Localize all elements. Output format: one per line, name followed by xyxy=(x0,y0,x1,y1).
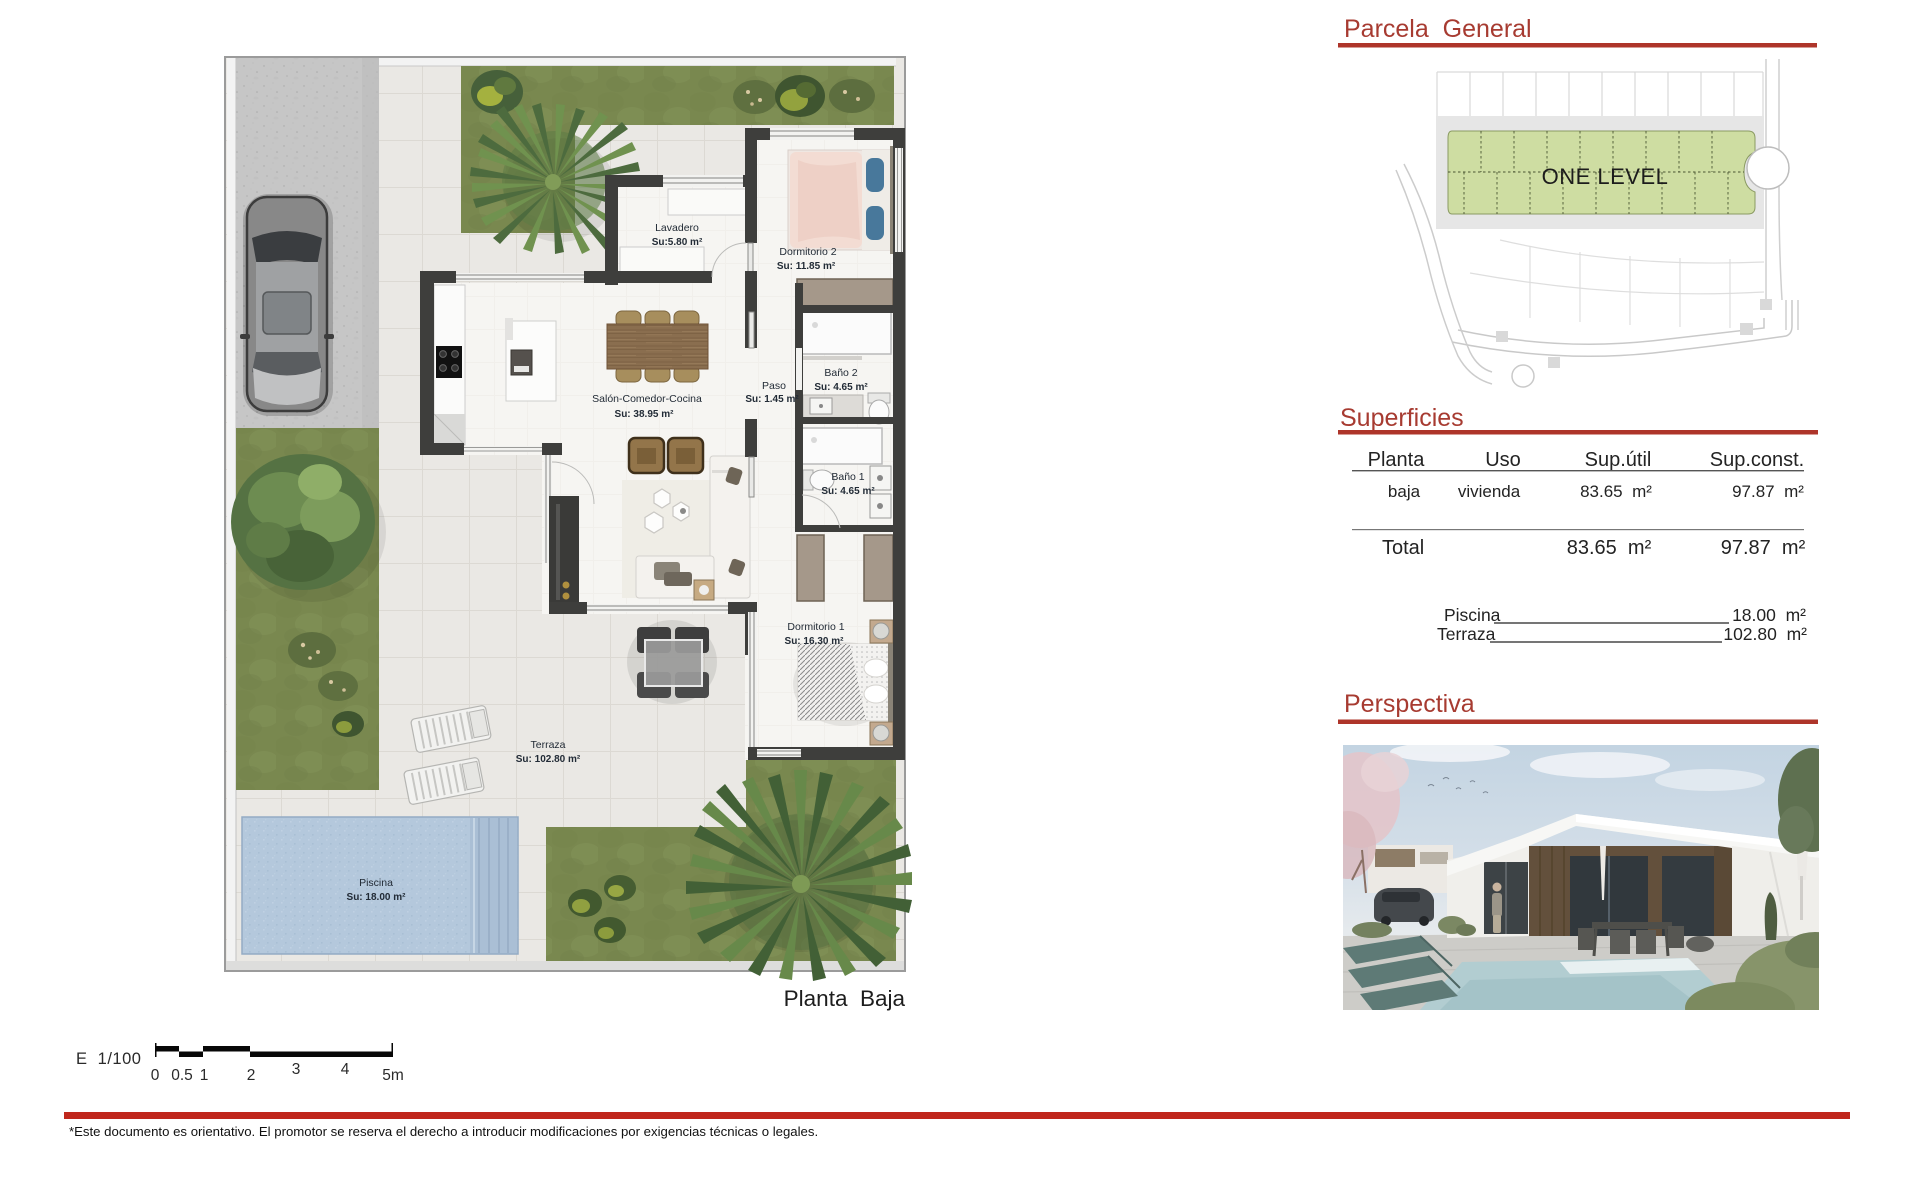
svg-text:Su: 4.65 m²: Su: 4.65 m² xyxy=(821,486,875,497)
svg-text:Terraza: Terraza xyxy=(530,739,565,751)
svg-text:83.65 m²: 83.65 m² xyxy=(1567,537,1652,559)
svg-text:baja: baja xyxy=(1388,482,1421,501)
svg-text:18.00 m²: 18.00 m² xyxy=(1732,605,1806,625)
svg-text:Planta: Planta xyxy=(1368,449,1426,471)
svg-text:Piscina: Piscina xyxy=(359,877,393,889)
svg-text:Su: 38.95 m²: Su: 38.95 m² xyxy=(615,409,675,420)
svg-text:Su: 4.65 m²: Su: 4.65 m² xyxy=(814,382,868,393)
svg-text:Su: 16.30 m²: Su: 16.30 m² xyxy=(785,636,845,647)
svg-text:Sup.const.: Sup.const. xyxy=(1710,449,1805,471)
svg-text:97.87 m²: 97.87 m² xyxy=(1721,537,1806,559)
svg-text:0.5: 0.5 xyxy=(171,1067,193,1084)
svg-text:Su: 18.00 m²: Su: 18.00 m² xyxy=(347,892,407,903)
svg-text:Planta Baja: Planta Baja xyxy=(784,986,906,1011)
svg-text:*Este documento es orientativo: *Este documento es orientativo. El promo… xyxy=(69,1124,818,1139)
svg-text:5m: 5m xyxy=(382,1067,404,1084)
svg-text:Superficies: Superficies xyxy=(1340,404,1464,432)
svg-text:Dormitorio 1: Dormitorio 1 xyxy=(787,621,844,633)
svg-text:Su: 102.80 m²: Su: 102.80 m² xyxy=(516,754,581,765)
svg-text:Parcela General: Parcela General xyxy=(1344,15,1532,43)
svg-text:Su: 11.85 m²: Su: 11.85 m² xyxy=(777,261,836,272)
svg-text:E 1/100: E 1/100 xyxy=(76,1050,141,1068)
svg-text:Perspectiva: Perspectiva xyxy=(1344,690,1475,718)
svg-text:vivienda: vivienda xyxy=(1458,482,1521,501)
svg-text:3: 3 xyxy=(292,1061,301,1078)
svg-text:Su: 1.45 m²: Su: 1.45 m² xyxy=(745,394,799,405)
svg-text:102.80 m²: 102.80 m² xyxy=(1723,624,1807,644)
svg-text:1: 1 xyxy=(200,1067,209,1084)
svg-text:Piscina: Piscina xyxy=(1444,605,1501,625)
svg-text:Salón-Comedor-Cocina: Salón-Comedor-Cocina xyxy=(592,393,702,405)
svg-text:Baño 1: Baño 1 xyxy=(831,471,864,483)
svg-text:Lavadero: Lavadero xyxy=(655,222,699,234)
svg-text:0: 0 xyxy=(151,1067,160,1084)
svg-text:83.65 m²: 83.65 m² xyxy=(1580,482,1652,501)
svg-text:Total: Total xyxy=(1382,537,1424,559)
svg-text:Uso: Uso xyxy=(1485,449,1521,471)
svg-text:97.87 m²: 97.87 m² xyxy=(1732,482,1804,501)
svg-text:Su:5.80 m²: Su:5.80 m² xyxy=(652,237,703,248)
svg-text:Sup.útil: Sup.útil xyxy=(1585,449,1652,471)
svg-text:Dormitorio 2: Dormitorio 2 xyxy=(779,246,836,258)
svg-text:ONE LEVEL: ONE LEVEL xyxy=(1542,164,1669,189)
svg-text:Paso: Paso xyxy=(762,380,786,392)
svg-text:Terraza: Terraza xyxy=(1437,624,1496,644)
svg-text:Baño 2: Baño 2 xyxy=(824,367,857,379)
svg-text:2: 2 xyxy=(247,1067,256,1084)
svg-text:4: 4 xyxy=(341,1061,350,1078)
